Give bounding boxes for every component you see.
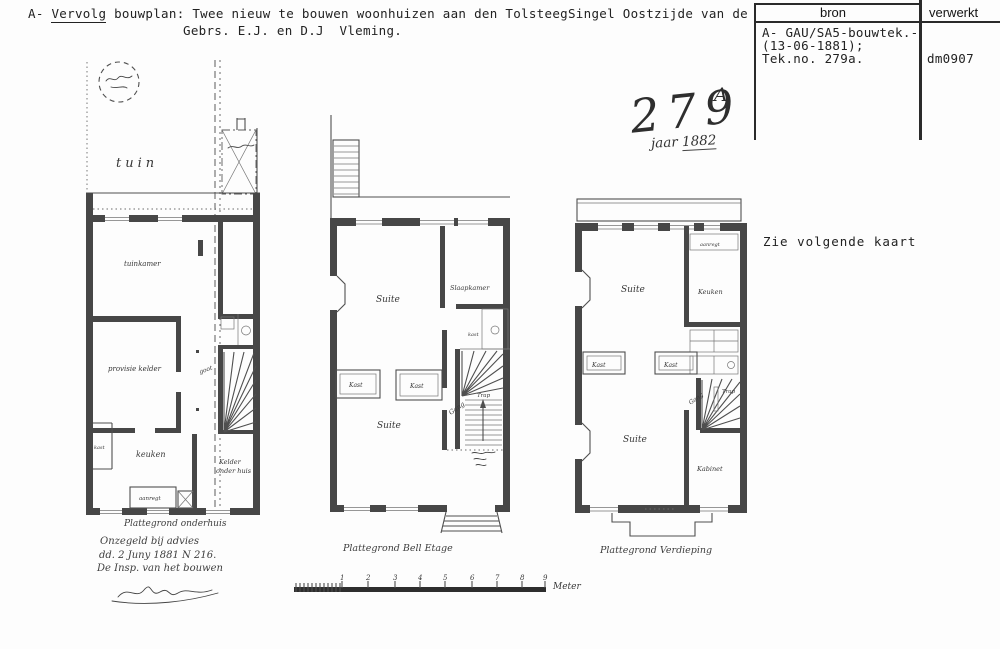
window bbox=[670, 223, 694, 231]
bay-step-outline bbox=[612, 513, 712, 536]
window bbox=[700, 505, 728, 513]
inspector-signature bbox=[112, 587, 218, 604]
window bbox=[100, 508, 122, 515]
scale-tick-label: 9 bbox=[543, 574, 548, 582]
small-box-cross bbox=[178, 491, 193, 508]
interior-wall bbox=[684, 226, 689, 326]
scale-tick-label: 8 bbox=[520, 574, 525, 582]
scale-tick-label: 4 bbox=[417, 574, 422, 582]
room-label: Keuken bbox=[697, 288, 723, 296]
window bbox=[147, 508, 169, 515]
stair-wall bbox=[696, 378, 701, 430]
floor-plan-drawing: tuin bbox=[0, 0, 1000, 649]
scale-unit-label: Meter bbox=[552, 582, 581, 592]
garden-well-circle bbox=[99, 62, 139, 102]
garden-label: tuin bbox=[116, 156, 158, 171]
scale-tick-label: 1 bbox=[340, 574, 344, 582]
fixture-circle bbox=[728, 362, 735, 369]
interior-wall bbox=[93, 316, 181, 322]
winder-stair bbox=[702, 379, 740, 430]
neighbor-shed-diagonals bbox=[222, 130, 256, 194]
room-label: Kabinet bbox=[696, 465, 723, 473]
plan-middle-bel-etage: Suite Slaapkamer Kast Kast kast Trap Gan… bbox=[330, 115, 510, 533]
window bbox=[206, 508, 230, 515]
balcony-strip bbox=[577, 199, 741, 221]
room-label: Kast bbox=[409, 383, 424, 390]
room-label: kast bbox=[94, 445, 106, 451]
room-label: Kelder bbox=[218, 458, 242, 466]
fireplace bbox=[582, 270, 590, 308]
room-label: Suite bbox=[623, 435, 647, 445]
fireplace-gap bbox=[330, 276, 337, 310]
window bbox=[344, 505, 370, 512]
winder-stair bbox=[462, 351, 503, 396]
fixture-circle bbox=[491, 326, 499, 334]
window bbox=[158, 215, 182, 222]
room-label: provisie kelder bbox=[108, 365, 162, 373]
interior-wall bbox=[155, 428, 181, 433]
interior-wall bbox=[684, 322, 746, 327]
stair-wall bbox=[218, 349, 223, 434]
room-label: aanregt bbox=[700, 242, 721, 248]
outer-wall-left bbox=[86, 193, 93, 515]
scale-tick-label: 6 bbox=[470, 574, 475, 582]
interior-wall bbox=[442, 330, 447, 388]
spiral-stair bbox=[224, 352, 256, 432]
room-label: Kast bbox=[591, 362, 606, 369]
post bbox=[196, 408, 199, 411]
window bbox=[704, 223, 720, 231]
outer-wall-right bbox=[503, 218, 510, 512]
interior-wall bbox=[442, 410, 447, 450]
window bbox=[598, 223, 622, 231]
shed-scribble bbox=[228, 145, 254, 148]
scanned-building-plan-sheet: A- Vervolg bouwplan: Twee nieuw te bouwe… bbox=[0, 0, 1000, 649]
window bbox=[634, 223, 658, 231]
post bbox=[196, 350, 199, 353]
wall-pier bbox=[198, 240, 203, 256]
interior-wall bbox=[93, 428, 135, 433]
fireplace bbox=[582, 423, 590, 461]
fireplace bbox=[337, 276, 345, 312]
scale-bar-ticks bbox=[342, 581, 545, 588]
room-label: aanregt bbox=[139, 496, 162, 502]
entrance-door-gap bbox=[447, 505, 495, 512]
room-label: Suite bbox=[376, 295, 400, 305]
window bbox=[590, 505, 618, 513]
window bbox=[105, 215, 129, 222]
outer-wall-right bbox=[740, 223, 747, 513]
room-label: Kast bbox=[663, 362, 678, 369]
scale-tick-label: 7 bbox=[495, 574, 500, 582]
entrance-steps bbox=[441, 512, 502, 533]
room-label: Trap bbox=[477, 393, 491, 399]
interior-wall bbox=[440, 226, 445, 308]
exterior-stair bbox=[333, 140, 359, 197]
interior-wall bbox=[684, 410, 689, 508]
sink-fixture bbox=[242, 326, 251, 335]
scale-tick-label: 3 bbox=[393, 574, 398, 582]
fireplace-gap bbox=[575, 425, 582, 459]
interior-wall bbox=[218, 345, 260, 349]
window bbox=[458, 218, 488, 226]
room-label: Slaapkamer bbox=[450, 284, 490, 292]
room-label: keuken bbox=[136, 450, 165, 459]
exterior-stair-treads bbox=[334, 146, 359, 194]
vestibule-note-scribble bbox=[472, 452, 495, 466]
interior-wall bbox=[176, 322, 181, 372]
window bbox=[386, 505, 418, 512]
room-label: tuinkamer bbox=[124, 260, 161, 268]
fireplace-gap bbox=[575, 272, 582, 306]
well-scribble bbox=[106, 76, 132, 88]
room-label: Suite bbox=[621, 285, 645, 295]
room-label: Trap bbox=[722, 389, 736, 395]
scale-bar: 1 2 3 4 5 6 7 8 9 Meter bbox=[294, 574, 581, 592]
interior-wall bbox=[456, 304, 510, 309]
window bbox=[356, 218, 382, 226]
party-wall bbox=[218, 222, 223, 316]
scale-tick-label: 2 bbox=[365, 574, 371, 582]
room-label: Kast bbox=[348, 382, 363, 389]
shelf-lines bbox=[690, 330, 738, 352]
room-label: onder huis bbox=[216, 467, 252, 475]
room-label: Suite bbox=[377, 421, 401, 431]
interior-wall bbox=[218, 314, 260, 319]
room-label: kast bbox=[468, 332, 480, 338]
plan-left-onderhuis: tuin bbox=[86, 60, 260, 515]
plan-right-verdieping: Suite Keuken aanregt Kast Kast Gang Trap… bbox=[575, 199, 747, 536]
stair-wall bbox=[455, 349, 460, 449]
outer-wall-left bbox=[330, 218, 337, 512]
room-label: goot bbox=[198, 364, 214, 375]
outer-wall-left bbox=[575, 223, 582, 513]
window bbox=[420, 218, 454, 226]
scale-tick-label: 5 bbox=[443, 574, 448, 582]
interior-wall bbox=[176, 392, 181, 428]
neighbor-wall bbox=[237, 118, 257, 193]
